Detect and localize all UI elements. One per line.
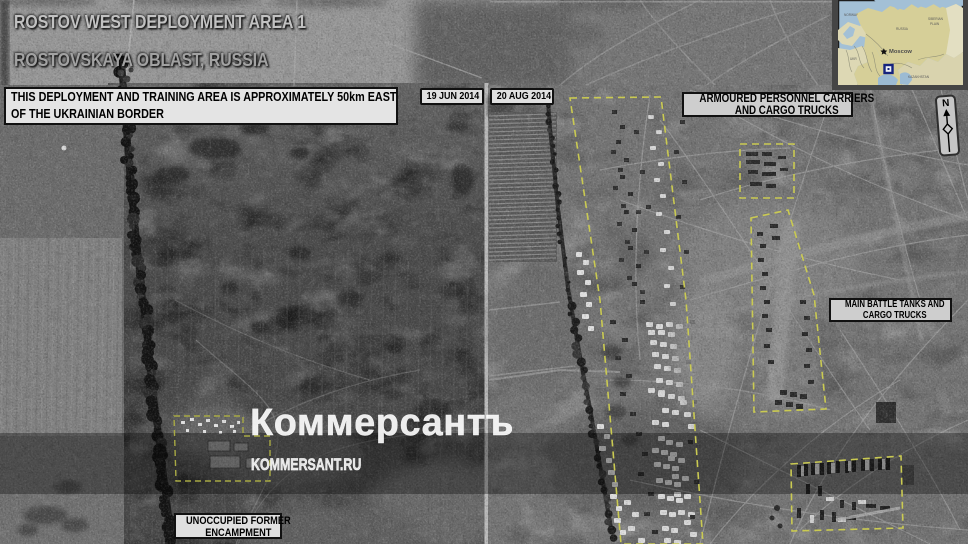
svg-text:Moscow: Moscow [889,49,912,55]
svg-text:KAZAKHSTAN: KAZAKHSTAN [908,75,930,79]
svg-text:SIBERIAN: SIBERIAN [928,17,944,21]
svg-text:NORWAY: NORWAY [844,13,859,17]
svg-text:PLAIN: PLAIN [930,22,940,26]
svg-text:RUSSIA: RUSSIA [896,27,909,31]
svg-text:UKR: UKR [850,57,857,61]
